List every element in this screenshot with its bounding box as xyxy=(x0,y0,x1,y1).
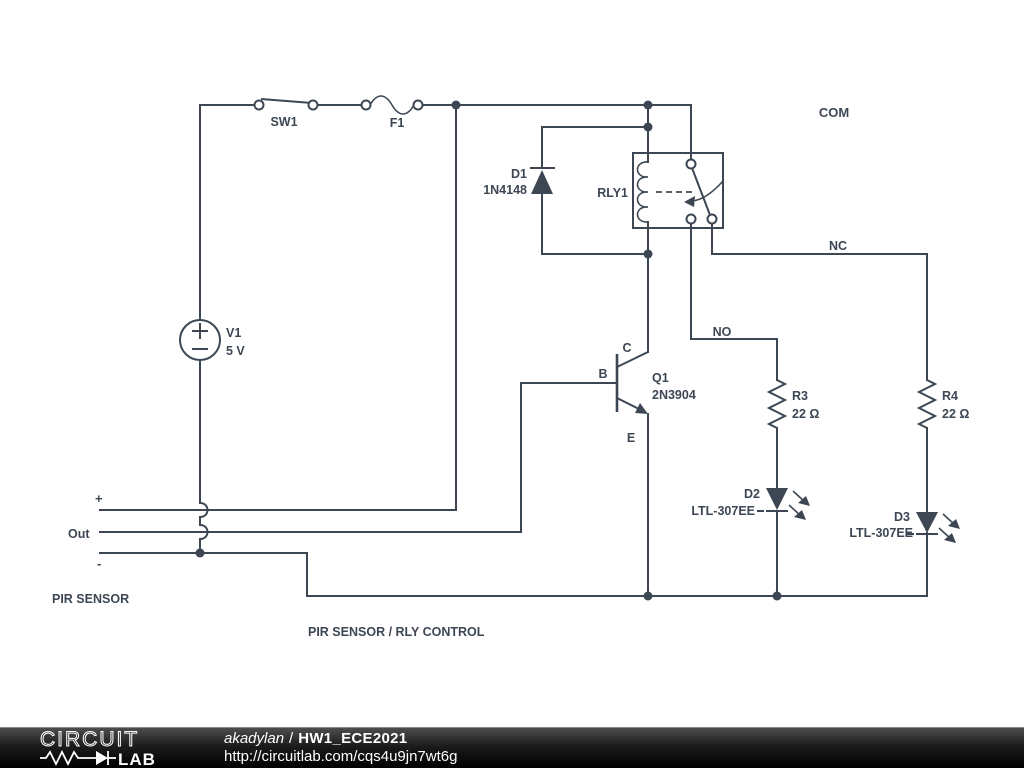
author-name[interactable]: akadylan xyxy=(224,730,284,747)
logo-word-lab: LAB xyxy=(118,750,156,767)
relay-coil xyxy=(638,162,649,222)
wire-v1-negative xyxy=(200,360,208,553)
r4-resistor[interactable]: R4 22 Ω xyxy=(919,380,969,428)
rly1-relay[interactable]: RLY1 xyxy=(597,153,723,228)
circuitlab-logo[interactable]: CIRCUIT LAB xyxy=(38,729,178,767)
d2-label: D2 xyxy=(744,487,760,501)
d2-led[interactable]: D2 LTL-307EE xyxy=(691,487,810,520)
pir-out-label: Out xyxy=(68,527,90,541)
wire-pir-plus xyxy=(100,105,456,510)
d1-label: D1 xyxy=(511,167,527,181)
v1-label: V1 xyxy=(226,326,241,340)
q1-pin-e: E xyxy=(627,431,635,445)
project-title[interactable]: HW1_ECE2021 xyxy=(298,730,407,747)
r3-value: 22 Ω xyxy=(792,407,819,421)
net-label-nc: NC xyxy=(829,239,847,253)
d3-led[interactable]: D3 LTL-307EE xyxy=(849,510,960,543)
footer-bar: CIRCUIT LAB akadylan/HW1_ECE2021 http://… xyxy=(0,727,1024,768)
wire-positive-rail xyxy=(200,105,691,320)
r4-value: 22 Ω xyxy=(942,407,969,421)
footer-title-line: akadylan/HW1_ECE2021 xyxy=(224,730,457,748)
schematic-canvas[interactable]: SW1 F1 V1 5 V D1 1N4148 xyxy=(0,0,1024,727)
d1-diode[interactable]: D1 1N4148 xyxy=(483,167,555,197)
r3-label: R3 xyxy=(792,389,808,403)
d1-value: 1N4148 xyxy=(483,183,527,197)
logo-word-circuit: CIRCUIT xyxy=(40,729,139,751)
wire-ground-rail xyxy=(100,533,927,596)
q1-value: 2N3904 xyxy=(652,388,696,402)
junction-dots xyxy=(196,101,782,601)
pir-sensor-caption: PIR SENSOR xyxy=(52,592,129,606)
circuit-url[interactable]: http://circuitlab.com/cqs4u9jn7wt6g xyxy=(224,748,457,766)
d3-label: D3 xyxy=(894,510,910,524)
v1-value: 5 V xyxy=(226,344,245,358)
footer-meta: akadylan/HW1_ECE2021 http://circuitlab.c… xyxy=(224,730,457,766)
pir-plus-label: + xyxy=(95,491,103,506)
r3-resistor[interactable]: R3 22 Ω xyxy=(769,380,819,428)
sw1-switch[interactable]: SW1 xyxy=(255,99,318,129)
d2-value: LTL-307EE xyxy=(691,504,755,518)
v1-voltage-source[interactable]: V1 5 V xyxy=(180,320,245,360)
drawing-title: PIR SENSOR / RLY CONTROL xyxy=(308,625,485,639)
d3-value: LTL-307EE xyxy=(849,526,913,540)
q1-pin-c: C xyxy=(622,341,631,355)
net-label-no: NO xyxy=(713,325,732,339)
q1-label: Q1 xyxy=(652,371,669,385)
net-label-com: COM xyxy=(819,105,849,120)
r4-label: R4 xyxy=(942,389,958,403)
logo-resistor-diode-icon xyxy=(40,751,116,765)
rly1-label: RLY1 xyxy=(597,186,628,200)
wire-relay-nc xyxy=(712,223,927,380)
sw1-label: SW1 xyxy=(270,115,297,129)
f1-fuse[interactable]: F1 xyxy=(362,96,423,130)
f1-label: F1 xyxy=(390,116,405,130)
q1-pin-b: B xyxy=(598,367,607,381)
pir-minus-label: - xyxy=(97,556,101,571)
wire-relay-no xyxy=(691,223,777,380)
title-separator: / xyxy=(289,730,293,747)
schematic-area[interactable]: SW1 F1 V1 5 V D1 1N4148 xyxy=(0,0,1024,727)
